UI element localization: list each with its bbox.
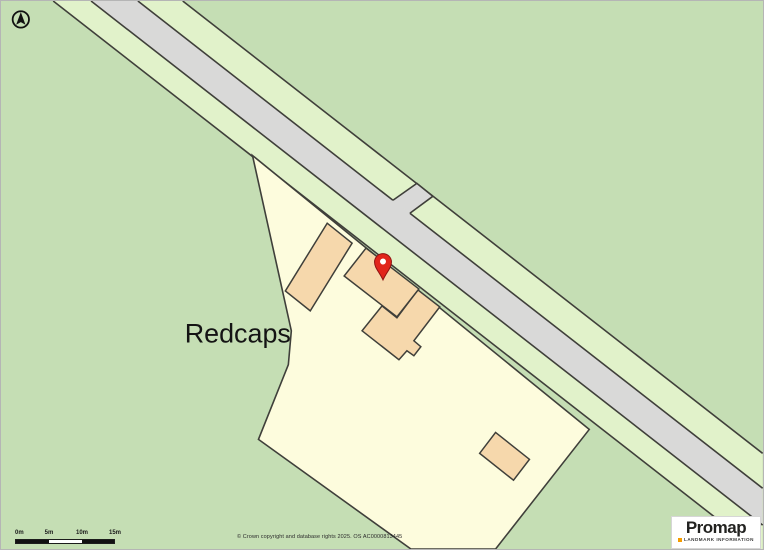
scale-label-5: 5m <box>45 530 54 537</box>
map-canvas[interactable]: Redcaps <box>1 1 763 549</box>
scale-bar-labels: 0m 5m 10m 15m <box>15 530 135 538</box>
place-label: Redcaps <box>185 319 291 349</box>
landmark-accent-square <box>678 538 682 542</box>
scale-bar: 0m 5m 10m 15m <box>15 530 135 546</box>
scale-label-15: 15m <box>109 530 121 537</box>
copyright-notice: © Crown copyright and database rights 20… <box>237 534 402 540</box>
promap-tagline: LANDMARK INFORMATION <box>684 537 754 542</box>
promap-logo-text: Promap <box>672 518 760 537</box>
scale-label-0: 0m <box>15 530 24 537</box>
promap-logo: Promap LANDMARK INFORMATION <box>671 516 761 549</box>
map-viewport[interactable]: Redcaps 0m 5m 10m 15m © Crown copyright … <box>0 0 764 550</box>
scale-bar-strip <box>15 539 115 544</box>
scale-label-10: 10m <box>76 530 88 537</box>
